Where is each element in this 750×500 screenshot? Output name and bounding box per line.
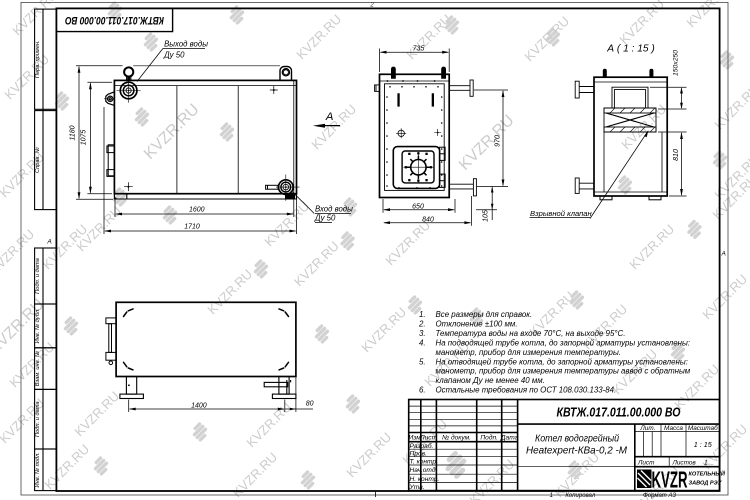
- svg-text:1075: 1075: [81, 130, 88, 146]
- svg-text:KVZR.RU: KVZR.RU: [466, 456, 517, 500]
- svg-text:KVZR.RU: KVZR.RU: [6, 339, 57, 390]
- svg-text:KVZR.RU: KVZR.RU: [711, 81, 750, 132]
- svg-text:KVZR.RU: KVZR.RU: [456, 112, 518, 174]
- svg-text:Лист: Лист: [419, 434, 437, 441]
- svg-text:Взам. инв. №: Взам. инв. №: [35, 351, 41, 386]
- svg-text:KVZR.RU: KVZR.RU: [204, 266, 255, 317]
- svg-text:А: А: [46, 239, 51, 246]
- svg-text:Ду 50: Ду 50: [314, 214, 336, 223]
- svg-text:Разраб.: Разраб.: [410, 442, 434, 450]
- svg-text:Температура воды на входе 70°С: Температура воды на входе 70°С, на выход…: [436, 329, 626, 338]
- svg-text:манометр, прибор для измерения: манометр, прибор для измерения температу…: [436, 348, 621, 357]
- svg-text:105: 105: [483, 210, 490, 222]
- svg-text:KVZR.RU: KVZR.RU: [616, 0, 667, 47]
- svg-text:KVZR.RU: KVZR.RU: [293, 11, 344, 62]
- svg-text:1 : 15: 1 : 15: [694, 440, 713, 449]
- svg-text:А: А: [721, 251, 726, 258]
- svg-text:650: 650: [412, 203, 424, 210]
- svg-text:970: 970: [495, 135, 502, 147]
- svg-text:А: А: [325, 111, 334, 123]
- svg-text:КВТЖ.017.011.00.000 ВО: КВТЖ.017.011.00.000 ВО: [65, 14, 164, 26]
- svg-text:Инв. № подл.: Инв. № подл.: [35, 452, 41, 487]
- svg-text:Взрывной клапан: Взрывной клапан: [530, 209, 593, 218]
- svg-text:Остальные требования по ОСТ 10: Остальные требования по ОСТ 108.030.133-…: [436, 385, 617, 394]
- svg-text:Пров.: Пров.: [410, 450, 428, 457]
- svg-text:KVZR.RU: KVZR.RU: [229, 449, 280, 500]
- svg-text:KVZR.RU: KVZR.RU: [0, 226, 37, 277]
- svg-text:3.: 3.: [419, 329, 426, 338]
- svg-text:Утв.: Утв.: [409, 484, 425, 491]
- svg-text:KVZR.RU: KVZR.RU: [308, 101, 359, 152]
- svg-text:1: 1: [704, 460, 708, 467]
- svg-text:Подп. и дата: Подп. и дата: [35, 401, 41, 437]
- svg-text:5.: 5.: [419, 357, 426, 366]
- svg-text:Перв. примен.: Перв. примен.: [35, 40, 41, 78]
- svg-text:735: 735: [413, 46, 425, 53]
- svg-text:Н. контр.: Н. контр.: [410, 476, 440, 483]
- svg-text:Лит.: Лит.: [639, 425, 655, 432]
- svg-text:Дата: Дата: [500, 434, 519, 441]
- svg-text:КОТЕЛЬНЫЙ: КОТЕЛЬНЫЙ: [689, 470, 726, 478]
- svg-text:1710: 1710: [184, 224, 200, 231]
- svg-text:KVZR.RU: KVZR.RU: [291, 238, 342, 289]
- svg-text:1180: 1180: [70, 125, 77, 140]
- svg-text:1.: 1.: [419, 310, 426, 319]
- svg-text:Отклонение ±100 мм.: Отклонение ±100 мм.: [436, 320, 518, 329]
- svg-text:1600: 1600: [189, 207, 205, 214]
- svg-text:А ( 1 : 15 ): А ( 1 : 15 ): [606, 44, 655, 55]
- svg-text:Масштаб: Масштаб: [688, 424, 718, 432]
- svg-text:810: 810: [673, 149, 680, 161]
- svg-text:Ду 50: Ду 50: [163, 50, 185, 59]
- svg-text:Справ. №: Справ. №: [35, 147, 41, 173]
- svg-text:КВТЖ.017.011.00.000 ВО: КВТЖ.017.011.00.000 ВО: [557, 406, 681, 420]
- svg-text:KVZR.RU: KVZR.RU: [403, 11, 454, 62]
- svg-text:Инв. № дубл.: Инв. № дубл.: [35, 308, 41, 343]
- svg-text:На подводящей трубе котла, до: На подводящей трубе котла, до запорной а…: [436, 339, 690, 348]
- svg-text:80: 80: [306, 401, 314, 408]
- svg-text:1400: 1400: [191, 402, 207, 409]
- svg-text:4.: 4.: [419, 339, 426, 348]
- svg-text:KVZR.RU: KVZR.RU: [358, 304, 409, 355]
- svg-text:2: 2: [369, 3, 374, 9]
- svg-text:Heatexpert-КВа-0,2 -М: Heatexpert-КВа-0,2 -М: [526, 445, 627, 457]
- svg-text:Масса: Масса: [664, 425, 683, 432]
- svg-text:Формат А3: Формат А3: [643, 493, 676, 499]
- svg-text:KVZR.RU: KVZR.RU: [261, 198, 312, 249]
- svg-text:№ докум.: № докум.: [442, 433, 471, 441]
- svg-text:Подп. и дата: Подп. и дата: [35, 258, 41, 294]
- svg-text:Вход воды: Вход воды: [315, 205, 353, 214]
- svg-text:Подп.: Подп.: [480, 433, 498, 441]
- svg-text:KVZR.RU: KVZR.RU: [699, 271, 750, 322]
- svg-text:клапаном Ду не менее 40 мм.: клапаном Ду не менее 40 мм.: [436, 376, 545, 385]
- svg-text:KVZR.RU: KVZR.RU: [71, 388, 122, 439]
- svg-text:Листов: Листов: [672, 460, 697, 467]
- svg-text:KVZR.RU: KVZR.RU: [382, 217, 433, 268]
- svg-text:Котел водогрейный: Котел водогрейный: [535, 433, 619, 445]
- svg-text:6.: 6.: [419, 385, 426, 394]
- svg-text:1: 1: [550, 493, 553, 499]
- svg-text:KVZR.RU: KVZR.RU: [243, 399, 294, 450]
- svg-text:KVZR.RU: KVZR.RU: [683, 0, 734, 30]
- svg-text:KVZR.RU: KVZR.RU: [1, 51, 52, 102]
- svg-text:150х250: 150х250: [673, 50, 680, 76]
- svg-text:Копировал: Копировал: [565, 493, 595, 499]
- svg-text:KVZR.RU: KVZR.RU: [343, 429, 394, 480]
- svg-text:KVZR.RU: KVZR.RU: [626, 221, 677, 272]
- svg-text:840: 840: [422, 217, 434, 224]
- svg-text:На отводящей трубе котла, до з: На отводящей трубе котла, до запорной ар…: [436, 357, 688, 366]
- svg-text:ЗАВОД РЭУ: ЗАВОД РЭУ: [689, 481, 723, 487]
- svg-text:Нач.отд.: Нач.отд.: [410, 466, 438, 474]
- svg-text:KVZR: KVZR: [652, 467, 688, 493]
- svg-text:Все размеры для справок.: Все размеры для справок.: [436, 310, 533, 319]
- svg-text:KVZR.RU: KVZR.RU: [141, 101, 203, 163]
- svg-text:Т. контр.: Т. контр.: [410, 458, 439, 465]
- svg-text:KVZR.RU: KVZR.RU: [521, 13, 572, 64]
- svg-text:Выход воды: Выход воды: [164, 39, 208, 48]
- svg-text:манометр, прибор для измерения: манометр, прибор для измерения температу…: [436, 367, 691, 376]
- svg-text:Лист: Лист: [637, 460, 655, 467]
- svg-text:2.: 2.: [418, 320, 426, 329]
